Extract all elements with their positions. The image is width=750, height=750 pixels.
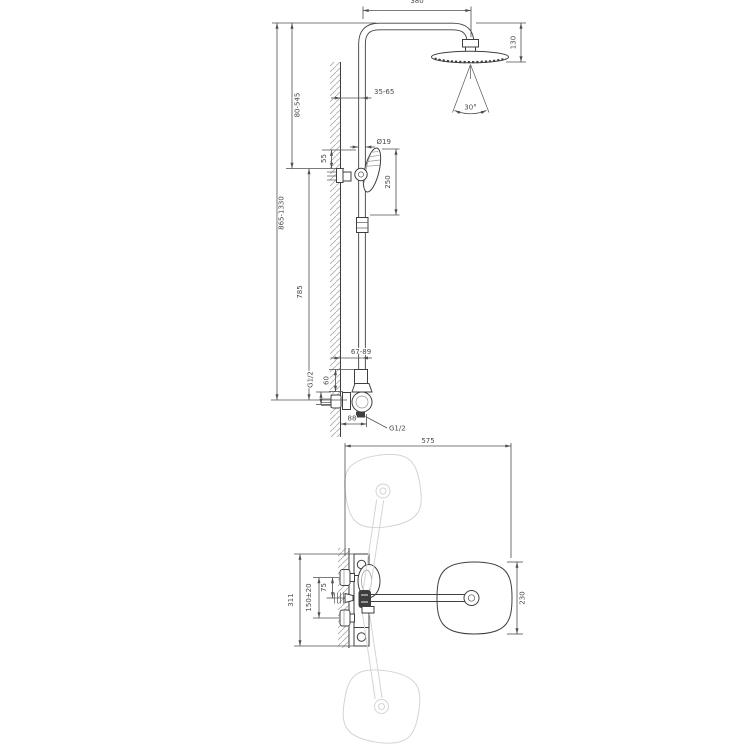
dim-rail-length-label: 785 <box>296 285 304 298</box>
arm-bracket <box>362 607 374 614</box>
shower-system-dimension-drawing: 30° <box>0 0 750 750</box>
inlet-fitting-bottom <box>340 610 355 626</box>
dim-inlet-thread-label: G1/2 <box>307 371 315 388</box>
valve-top-nut <box>355 370 368 384</box>
dim-upper-adjust-range-label: 80-545 <box>294 93 302 118</box>
arm-head-joint <box>464 591 479 606</box>
fixed-shower-head <box>432 40 509 63</box>
dim-spray-angle-label: 30° <box>464 104 476 112</box>
dimensions-front: 380 130 35-65 Ø19 55 250 80-545 <box>271 0 526 433</box>
hose-connector <box>357 218 369 233</box>
shower-head-plan <box>359 562 513 634</box>
head-connector-nut <box>463 40 479 48</box>
dim-wall-clearance-bottom-label: 67-89 <box>351 348 371 356</box>
dim-bracket-height-label: 311 <box>287 593 295 606</box>
dim-arm-reach-label: 380 <box>410 0 423 5</box>
dim-inlet-to-center-label: 75 <box>320 583 328 592</box>
ghost-head-lower <box>339 608 424 748</box>
dim-holder-offset-label: 55 <box>320 154 328 163</box>
technical-drawing-page: 30° <box>0 0 750 750</box>
screw-hole-bottom <box>357 633 365 641</box>
dim-outlet-thread-label: G1/2 <box>389 425 406 433</box>
valve-wall-flange <box>343 393 351 410</box>
dim-wall-to-outlet-label: 88 <box>348 415 357 423</box>
dim-overall-depth-label: 575 <box>421 437 434 445</box>
valve-body <box>352 392 372 412</box>
dim-wall-clearance-top-label: 35-65 <box>374 88 394 96</box>
inlet-fitting-top <box>340 570 355 586</box>
dim-head-drop-label: 130 <box>510 36 518 49</box>
front-view: 30° <box>271 0 526 437</box>
dim-overall-height-range-label: 865-1330 <box>278 196 286 230</box>
hand-shower-holder <box>355 168 367 180</box>
spray-cone: 30° <box>453 65 490 114</box>
inlet-escutcheon <box>331 395 341 408</box>
hose-outlet <box>356 412 365 418</box>
arm-swivel-joint <box>359 590 372 608</box>
plan-view: 575 311 150±20 75 230 <box>287 437 527 748</box>
dim-inlet-spacing-label: 150±20 <box>305 583 313 611</box>
dim-valve-body-height-label: 60 <box>323 376 331 385</box>
ghost-head-upper <box>340 450 425 591</box>
dim-head-width-label: 230 <box>519 591 527 604</box>
dim-rail-diameter-label: Ø19 <box>377 138 391 146</box>
dim-hand-shower-span-label: 250 <box>384 175 392 188</box>
shower-column-pipe <box>362 27 471 393</box>
